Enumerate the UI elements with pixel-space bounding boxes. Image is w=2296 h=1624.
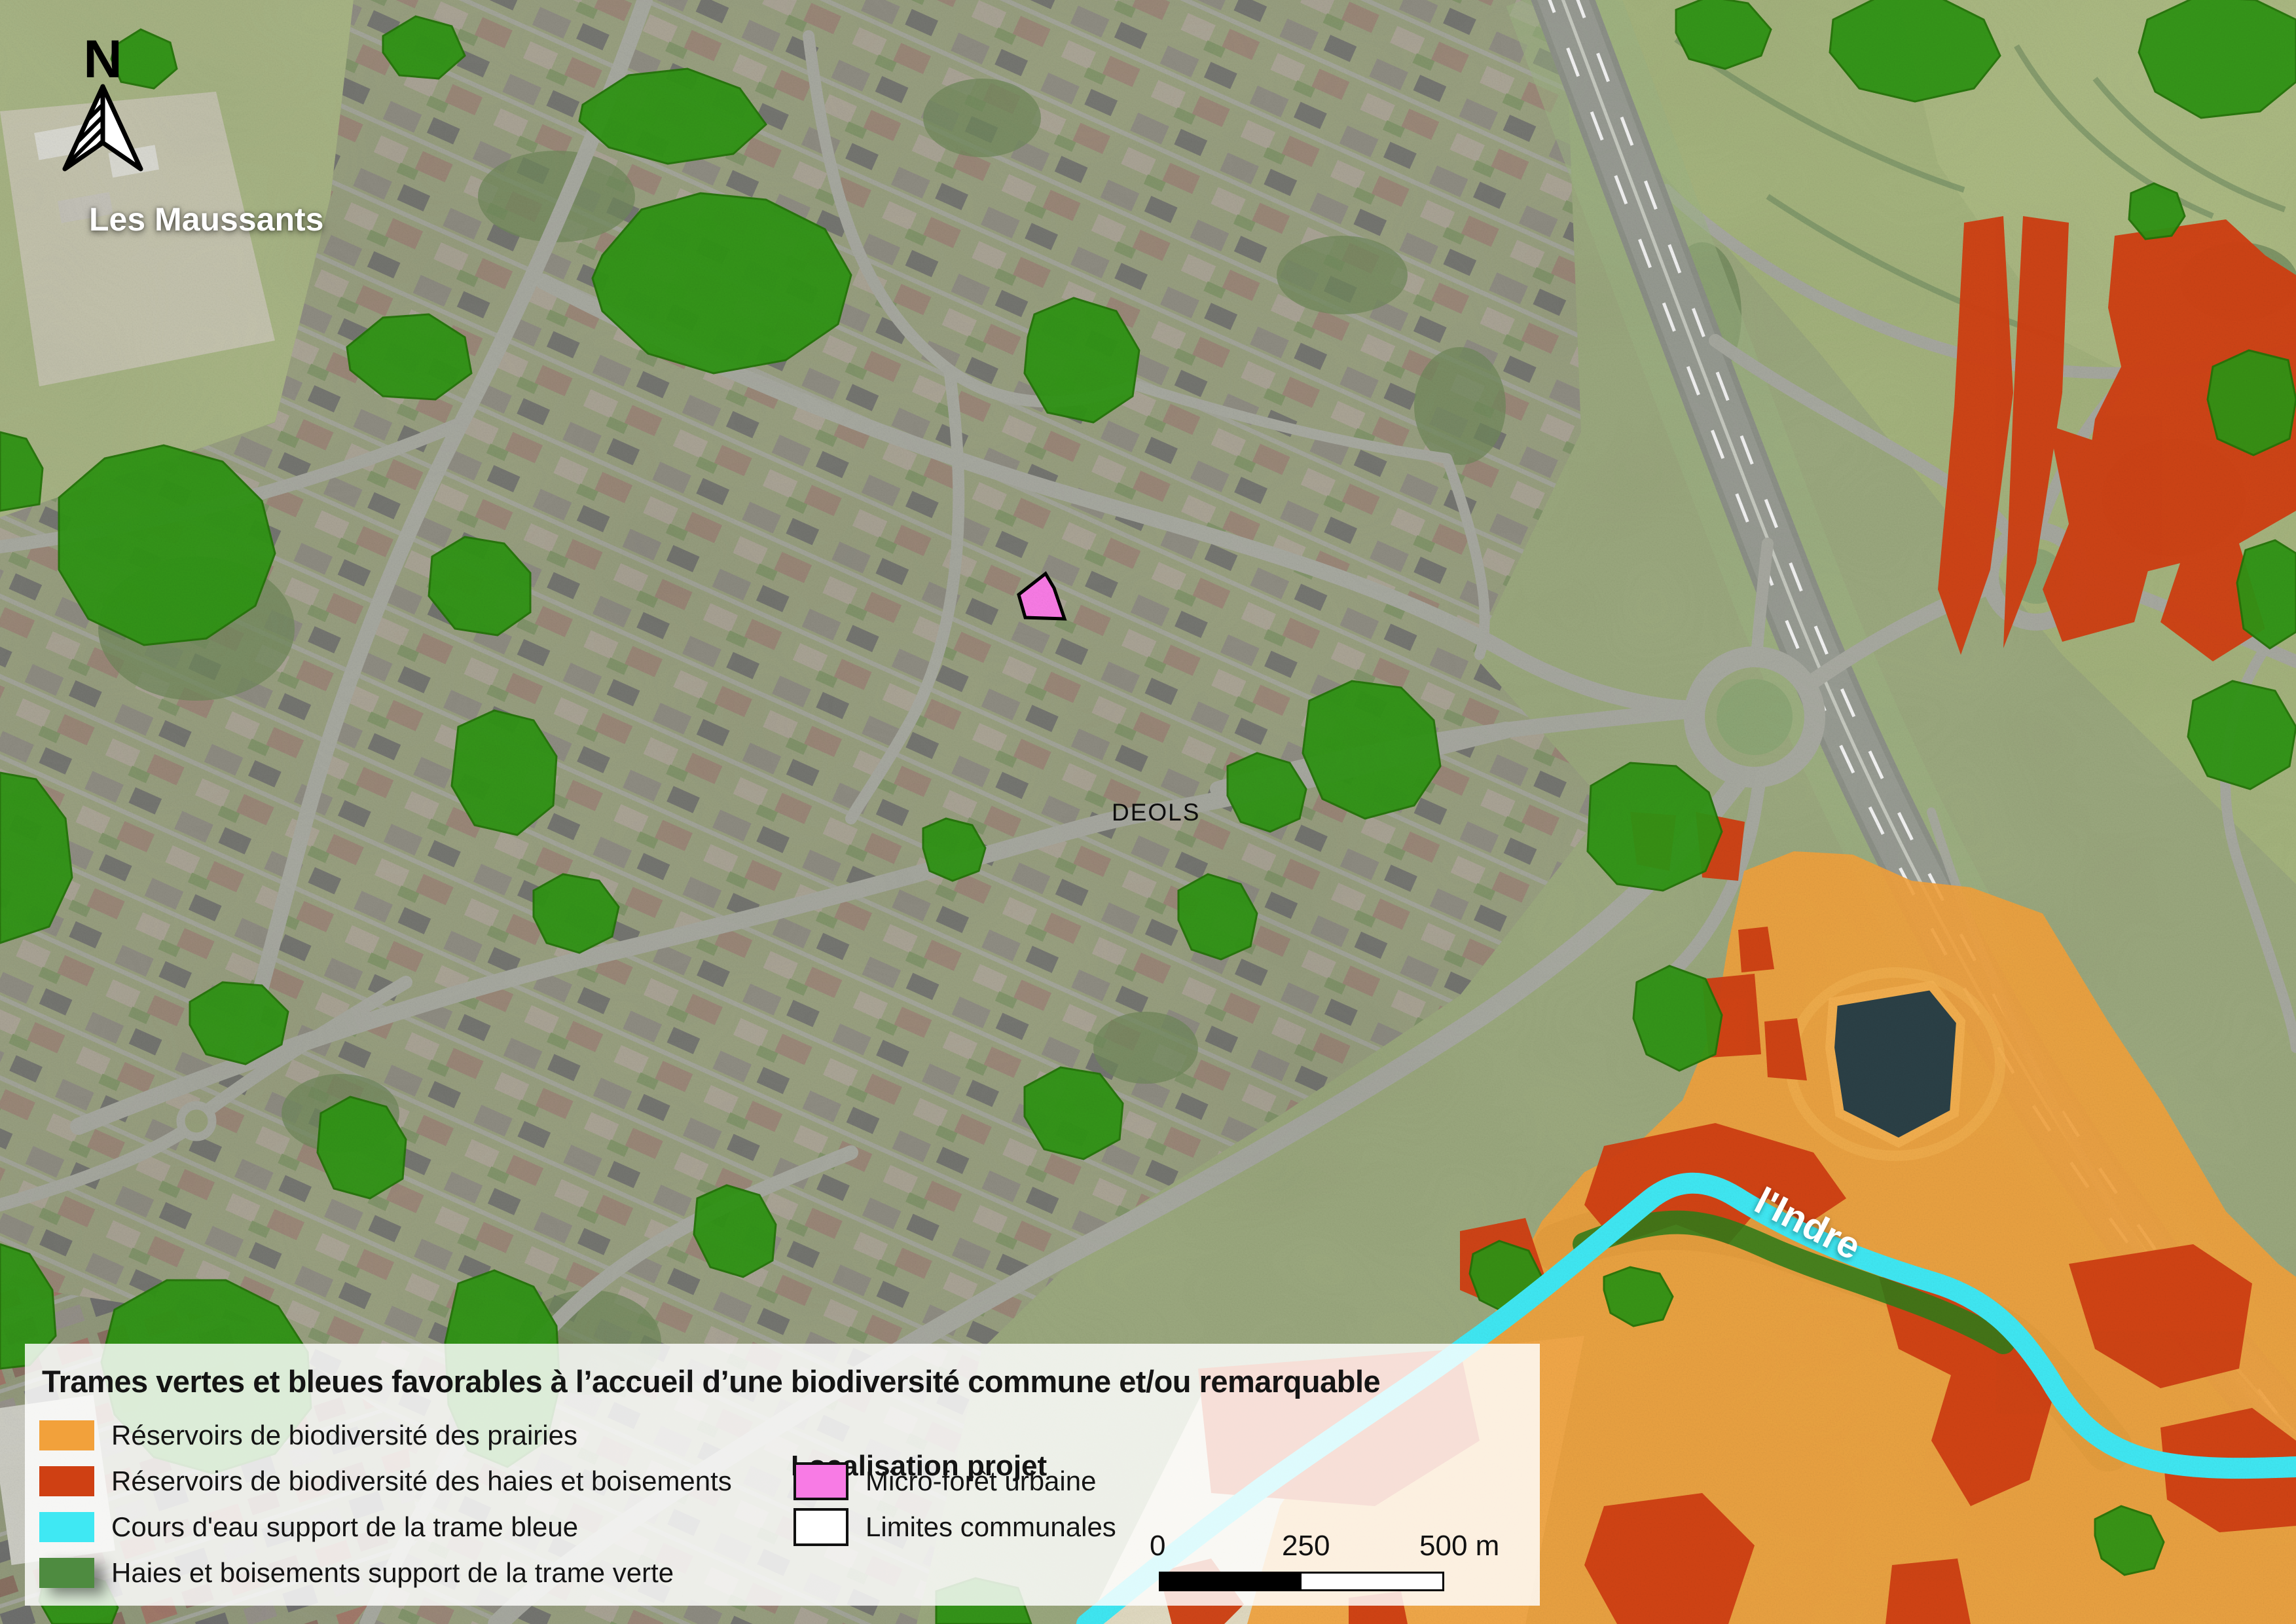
legend-swatch-micro-foret [793, 1462, 848, 1500]
legend-item-micro-foret: Micro-forêt urbaine [793, 1463, 1096, 1500]
legend-swatch-trame-verte [39, 1558, 94, 1588]
legend-item-prairies: Réservoirs de biodiversité des prairies [39, 1417, 577, 1454]
map-screenshot: N Les Maussants DEOLS l'Indre Trames ver… [0, 0, 2296, 1624]
scale-bar-white-half [1302, 1574, 1442, 1589]
legend-swatch-limites [793, 1508, 848, 1546]
legend-item-label: Limites communales [866, 1511, 1116, 1543]
map-legend: Trames vertes et bleues favorables à l’a… [25, 1344, 1540, 1606]
legend-item-label: Haies et boisements support de la trame … [111, 1557, 674, 1589]
north-label: N [83, 29, 122, 89]
legend-item-label: Micro-forêt urbaine [866, 1466, 1096, 1497]
legend-swatch-haies [39, 1466, 94, 1496]
legend-title: Trames vertes et bleues favorables à l’a… [42, 1363, 1380, 1399]
legend-item-trame-verte: Haies et boisements support de la trame … [39, 1555, 674, 1591]
scale-bar-black-half [1161, 1574, 1302, 1589]
scale-tick-250: 250 [1282, 1530, 1330, 1562]
legend-swatch-prairies [39, 1420, 94, 1450]
scale-tick-0: 0 [1150, 1530, 1165, 1562]
scale-tick-500: 500 m [1419, 1530, 1499, 1562]
scale-bar [1159, 1572, 1444, 1591]
legend-item-label: Réservoirs de biodiversité des haies et … [111, 1466, 732, 1497]
legend-swatch-cours-eau [39, 1512, 94, 1542]
legend-item-haies: Réservoirs de biodiversité des haies et … [39, 1463, 732, 1500]
legend-item-label: Réservoirs de biodiversité des prairies [111, 1420, 577, 1451]
legend-item-label: Cours d'eau support de la trame bleue [111, 1511, 578, 1543]
legend-item-limites: Limites communales [793, 1509, 1116, 1545]
legend-item-cours-eau: Cours d'eau support de la trame bleue [39, 1509, 578, 1545]
